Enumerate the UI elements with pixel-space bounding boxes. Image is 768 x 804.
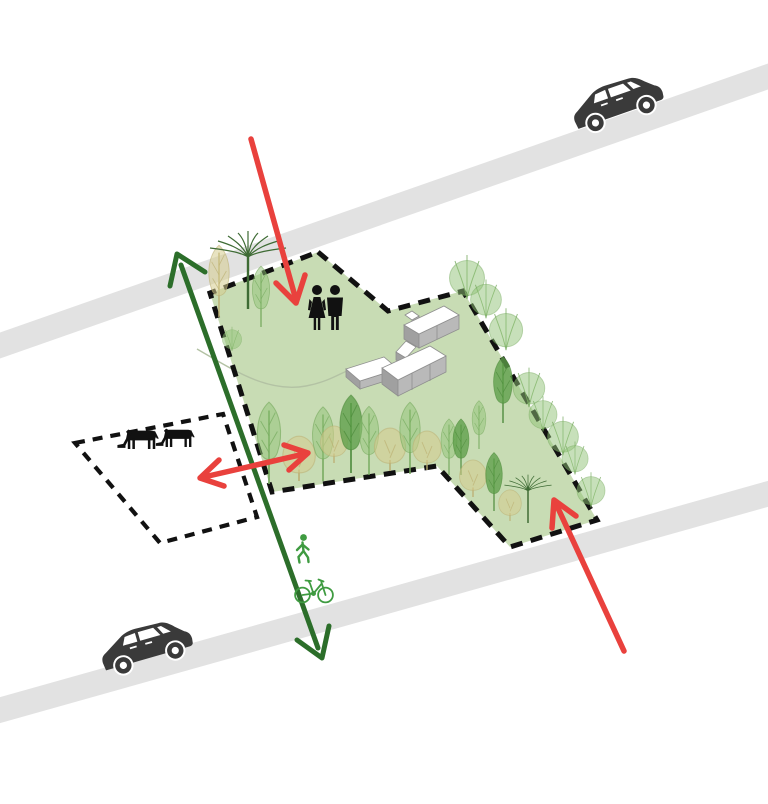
pedestrian-icon (297, 534, 309, 562)
road-bottom (0, 478, 768, 726)
site-diagram (0, 0, 768, 804)
diagram-canvas (0, 0, 768, 804)
